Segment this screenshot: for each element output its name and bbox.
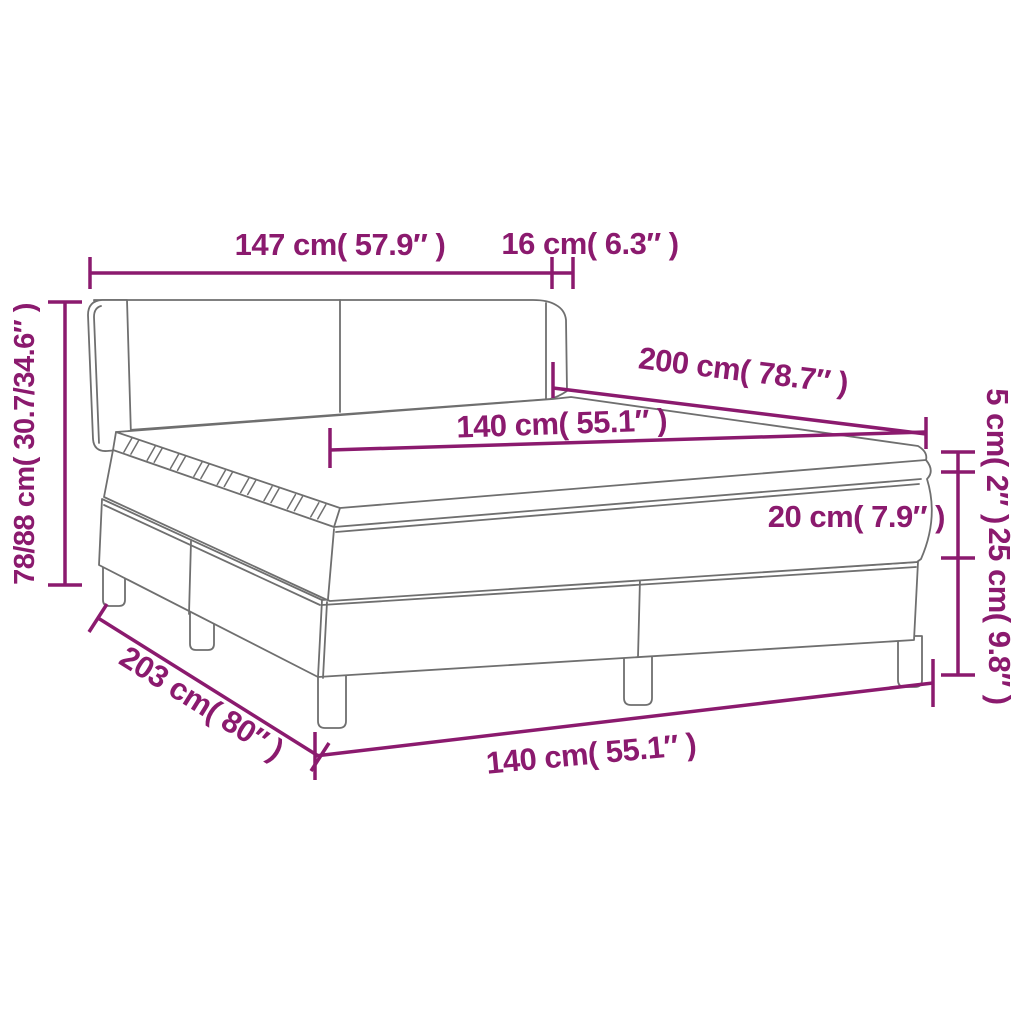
dim-topper-thickness-label: 5 cm( 2″ ) [980, 388, 1015, 524]
dim-height-range-label: 78/88 cm( 30.7/34.6″ ) [9, 303, 41, 585]
dim-tick [89, 604, 107, 632]
dim-height-range: 78/88 cm( 30.7/34.6″ ) [9, 302, 82, 585]
dim-headboard-width-label: 147 cm( 57.9″ ) [235, 227, 446, 262]
dim-total-length-label: 203 cm( 80″ ) [113, 639, 289, 767]
dim-mattress-width-label: 140 cm( 55.1″ ) [456, 402, 668, 444]
dim-bed-length-label: 200 cm( 78.7″ ) [637, 340, 850, 400]
bed-leg [898, 636, 922, 687]
bed-leg [624, 652, 652, 705]
dim-base-width-label: 140 cm( 55.1″ ) [485, 726, 698, 780]
bed-leg [318, 672, 346, 728]
bed-dimension-diagram: 147 cm( 57.9″ ) 16 cm( 6.3″ ) 78/88 cm( … [0, 0, 1024, 1024]
dim-headboard-side-depth-label: 16 cm( 6.3″ ) [501, 226, 678, 261]
dim-headboard-width: 147 cm( 57.9″ ) 16 cm( 6.3″ ) [90, 226, 679, 289]
diagram-canvas: 147 cm( 57.9″ ) 16 cm( 6.3″ ) 78/88 cm( … [0, 0, 1024, 1024]
dim-mattress-thickness-label: 20 cm( 7.9″ ) [768, 499, 945, 534]
dim-base-height-label: 25 cm( 9.8″ ) [982, 527, 1017, 704]
